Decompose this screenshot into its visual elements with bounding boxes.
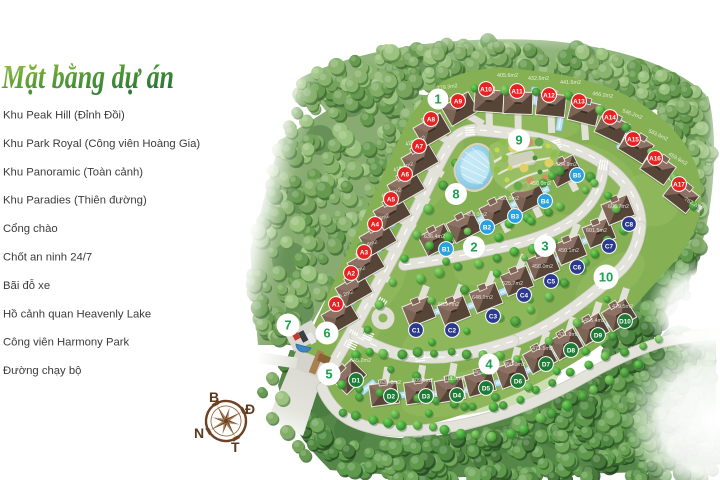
svg-text:A7: A7: [415, 143, 424, 150]
svg-text:D3: D3: [422, 393, 431, 400]
svg-text:606.7m2: 606.7m2: [608, 204, 629, 210]
svg-text:9: 9: [515, 133, 522, 148]
svg-text:C6: C6: [573, 264, 582, 271]
svg-text:A10: A10: [480, 86, 492, 93]
svg-text:D6: D6: [514, 378, 523, 385]
svg-text:D5: D5: [482, 385, 491, 392]
svg-text:6: 6: [323, 326, 330, 341]
svg-text:Khu Panoramic (Toàn cảnh): Khu Panoramic (Toàn cảnh): [3, 166, 143, 178]
svg-text:D7: D7: [542, 361, 551, 368]
svg-text:584.9m2: 584.9m2: [556, 162, 577, 168]
svg-text:C7: C7: [605, 243, 614, 250]
svg-text:450.0m2: 450.0m2: [504, 362, 525, 368]
svg-text:450.1m2: 450.1m2: [558, 248, 579, 254]
svg-text:Mặt bằng dự án: Mặt bằng dự án: [1, 59, 174, 96]
svg-text:2: 2: [470, 240, 477, 255]
svg-text:631.8m2: 631.8m2: [380, 380, 401, 386]
svg-text:A2: A2: [347, 270, 356, 277]
svg-text:Khu Park Royal (Công viên Hoàn: Khu Park Royal (Công viên Hoàng Gia): [3, 138, 200, 150]
svg-text:D8: D8: [567, 347, 576, 354]
svg-text:Khu Paradies (Thiên đường): Khu Paradies (Thiên đường): [3, 195, 147, 207]
svg-text:4: 4: [485, 357, 493, 372]
svg-text:A8: A8: [427, 116, 436, 123]
svg-text:450.0m2: 450.0m2: [498, 196, 519, 202]
svg-text:A9: A9: [454, 98, 463, 105]
svg-text:525.7m2: 525.7m2: [502, 281, 523, 287]
svg-text:3: 3: [541, 239, 548, 254]
svg-text:D1: D1: [352, 377, 361, 384]
svg-text:C2: C2: [448, 327, 457, 334]
svg-text:B5: B5: [573, 172, 582, 179]
svg-text:Bãi đỗ xe: Bãi đỗ xe: [3, 279, 50, 292]
svg-text:A6: A6: [401, 171, 410, 178]
svg-text:601.5m2: 601.5m2: [586, 228, 607, 234]
svg-text:611.9m2: 611.9m2: [444, 376, 465, 382]
svg-text:C8: C8: [625, 221, 634, 228]
svg-text:Hồ cảnh quan Heavenly Lake: Hồ cảnh quan Heavenly Lake: [3, 308, 151, 320]
svg-text:8: 8: [452, 187, 459, 202]
svg-text:Đường chạy bộ: Đường chạy bộ: [3, 365, 81, 377]
svg-text:Đ: Đ: [245, 401, 255, 417]
svg-text:432.6m2: 432.6m2: [528, 76, 549, 82]
svg-text:7: 7: [284, 318, 291, 333]
svg-text:A14: A14: [604, 114, 616, 121]
svg-text:B2: B2: [483, 224, 492, 231]
svg-text:A17: A17: [673, 181, 685, 188]
svg-text:C5: C5: [547, 278, 556, 285]
svg-text:471.5m2: 471.5m2: [532, 346, 553, 352]
svg-text:B3: B3: [511, 213, 520, 220]
svg-text:441.6m2: 441.6m2: [560, 80, 581, 86]
svg-text:B: B: [209, 389, 219, 405]
svg-text:405.6m2: 405.6m2: [497, 73, 518, 79]
svg-text:458.0m2: 458.0m2: [466, 212, 487, 218]
svg-text:A11: A11: [511, 88, 523, 95]
svg-text:450.0m2: 450.0m2: [530, 181, 551, 187]
svg-text:C1: C1: [412, 327, 421, 334]
svg-text:648.1m2: 648.1m2: [472, 295, 493, 301]
svg-text:609.3m2: 609.3m2: [412, 378, 433, 384]
svg-text:Cổng chào: Cổng chào: [3, 223, 58, 235]
svg-text:D10: D10: [619, 318, 631, 325]
svg-text:B4: B4: [541, 198, 550, 205]
svg-text:T: T: [231, 439, 240, 455]
svg-text:A15: A15: [627, 136, 639, 143]
svg-text:Khu Peak Hill (Đỉnh Đồi): Khu Peak Hill (Đỉnh Đồi): [3, 110, 125, 122]
svg-text:636.4m2: 636.4m2: [424, 234, 445, 240]
svg-text:A4: A4: [371, 221, 380, 228]
svg-text:456.4m2: 456.4m2: [584, 318, 605, 324]
svg-text:C4: C4: [520, 292, 529, 299]
svg-text:A5: A5: [387, 196, 396, 203]
svg-text:A13: A13: [573, 98, 585, 105]
svg-text:1: 1: [434, 92, 441, 107]
svg-text:D2: D2: [387, 393, 396, 400]
svg-text:431.9m2: 431.9m2: [558, 332, 579, 338]
svg-text:Công viên Harmony Park: Công viên Harmony Park: [3, 337, 130, 349]
svg-text:A1: A1: [332, 301, 341, 308]
svg-text:A12: A12: [543, 92, 555, 99]
svg-text:683.7m2: 683.7m2: [438, 302, 459, 308]
svg-text:D4: D4: [453, 392, 462, 399]
svg-text:B1: B1: [442, 246, 451, 253]
svg-text:A16: A16: [649, 155, 661, 162]
svg-text:Chốt an ninh 24/7: Chốt an ninh 24/7: [3, 252, 92, 264]
svg-text:D9: D9: [594, 332, 603, 339]
svg-text:450.0m2: 450.0m2: [532, 264, 553, 270]
svg-text:N: N: [194, 425, 204, 441]
svg-text:A3: A3: [360, 249, 369, 256]
svg-text:479.5m2: 479.5m2: [612, 304, 633, 310]
svg-text:C3: C3: [489, 313, 498, 320]
svg-text:10: 10: [599, 270, 613, 285]
svg-text:645.2m2: 645.2m2: [350, 358, 371, 364]
svg-text:5: 5: [325, 367, 332, 382]
